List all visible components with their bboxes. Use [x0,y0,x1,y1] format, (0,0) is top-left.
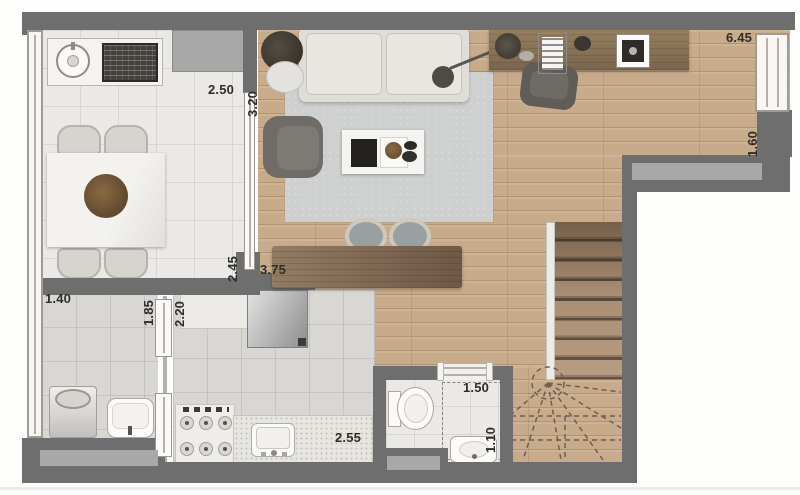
laundry-window-inset [40,450,158,466]
kitchen-sink [251,423,295,457]
desk-plant [495,33,521,59]
wall-top [22,12,795,30]
cooktop [175,404,235,463]
bath-window-inset [387,456,440,470]
dim-office-width: 6.45 [726,30,766,46]
door-jamb [486,362,493,381]
small-dish [404,141,417,150]
wall-bottom-mid [165,462,385,483]
dining-chair [57,125,101,156]
fridge [247,290,308,348]
laundry-sliding-panel [155,299,172,357]
dining-chair [104,125,148,156]
desk-plant-small [574,36,591,51]
dining-chair [104,248,148,279]
dim-dining-length: 2.45 [225,242,241,282]
desk-stone [519,51,534,61]
door-jamb [437,362,444,381]
notebook [538,33,567,74]
wall-right-upper [757,110,792,157]
toilet-bowl [397,387,434,430]
floor-plan: 2.50 3.20 6.45 1.60 2.45 3.75 1.40 1.85 … [0,0,800,495]
upper-cabinet [180,291,248,329]
staircase [555,222,622,380]
dim-living-width: 3.75 [260,262,300,278]
dim-kitchen-run: 2.20 [172,287,188,327]
wall-bottom-right [440,462,637,483]
coffee-table [342,130,424,174]
dim-living-depth: 3.20 [245,77,261,117]
serving-tray [351,139,377,167]
dim-dining-width: 2.50 [208,82,248,98]
table-centerpiece [84,174,128,218]
wall-right-vertical [622,190,637,483]
dim-counter-run: 2.55 [335,430,375,446]
dining-table [47,153,165,247]
dim-bath-width: 1.50 [463,380,503,396]
page-edge-line [0,487,800,490]
sofa [299,27,469,102]
wall-bath-west [373,366,386,483]
cooktop-knobs [183,407,229,412]
notch-window-inset [632,163,762,180]
stair-stringer [546,222,555,380]
dim-laundry-length: 1.85 [141,286,157,326]
dim-laundry-width: 1.40 [45,291,85,307]
dim-bath-depth: 1.10 [483,413,499,453]
wall-bath-north [373,366,442,380]
washing-machine [49,386,97,438]
flowers [385,142,402,159]
armchair [263,116,323,178]
side-table-light [266,61,304,93]
service-shaft [172,30,244,72]
dining-chair [57,248,101,279]
sliding-glass-door-dining [244,92,255,270]
round-sink [56,44,90,78]
stair-winder [503,358,637,462]
photo-frame [616,34,650,68]
bathroom-door [442,364,488,380]
laundry-sliding-panel [155,393,172,457]
small-dish [402,151,417,162]
dim-office-depth: 1.60 [745,117,761,157]
breakfast-counter [272,246,462,288]
laundry-tub [107,398,154,438]
barbecue-grill [102,43,158,82]
window-left [27,30,43,438]
